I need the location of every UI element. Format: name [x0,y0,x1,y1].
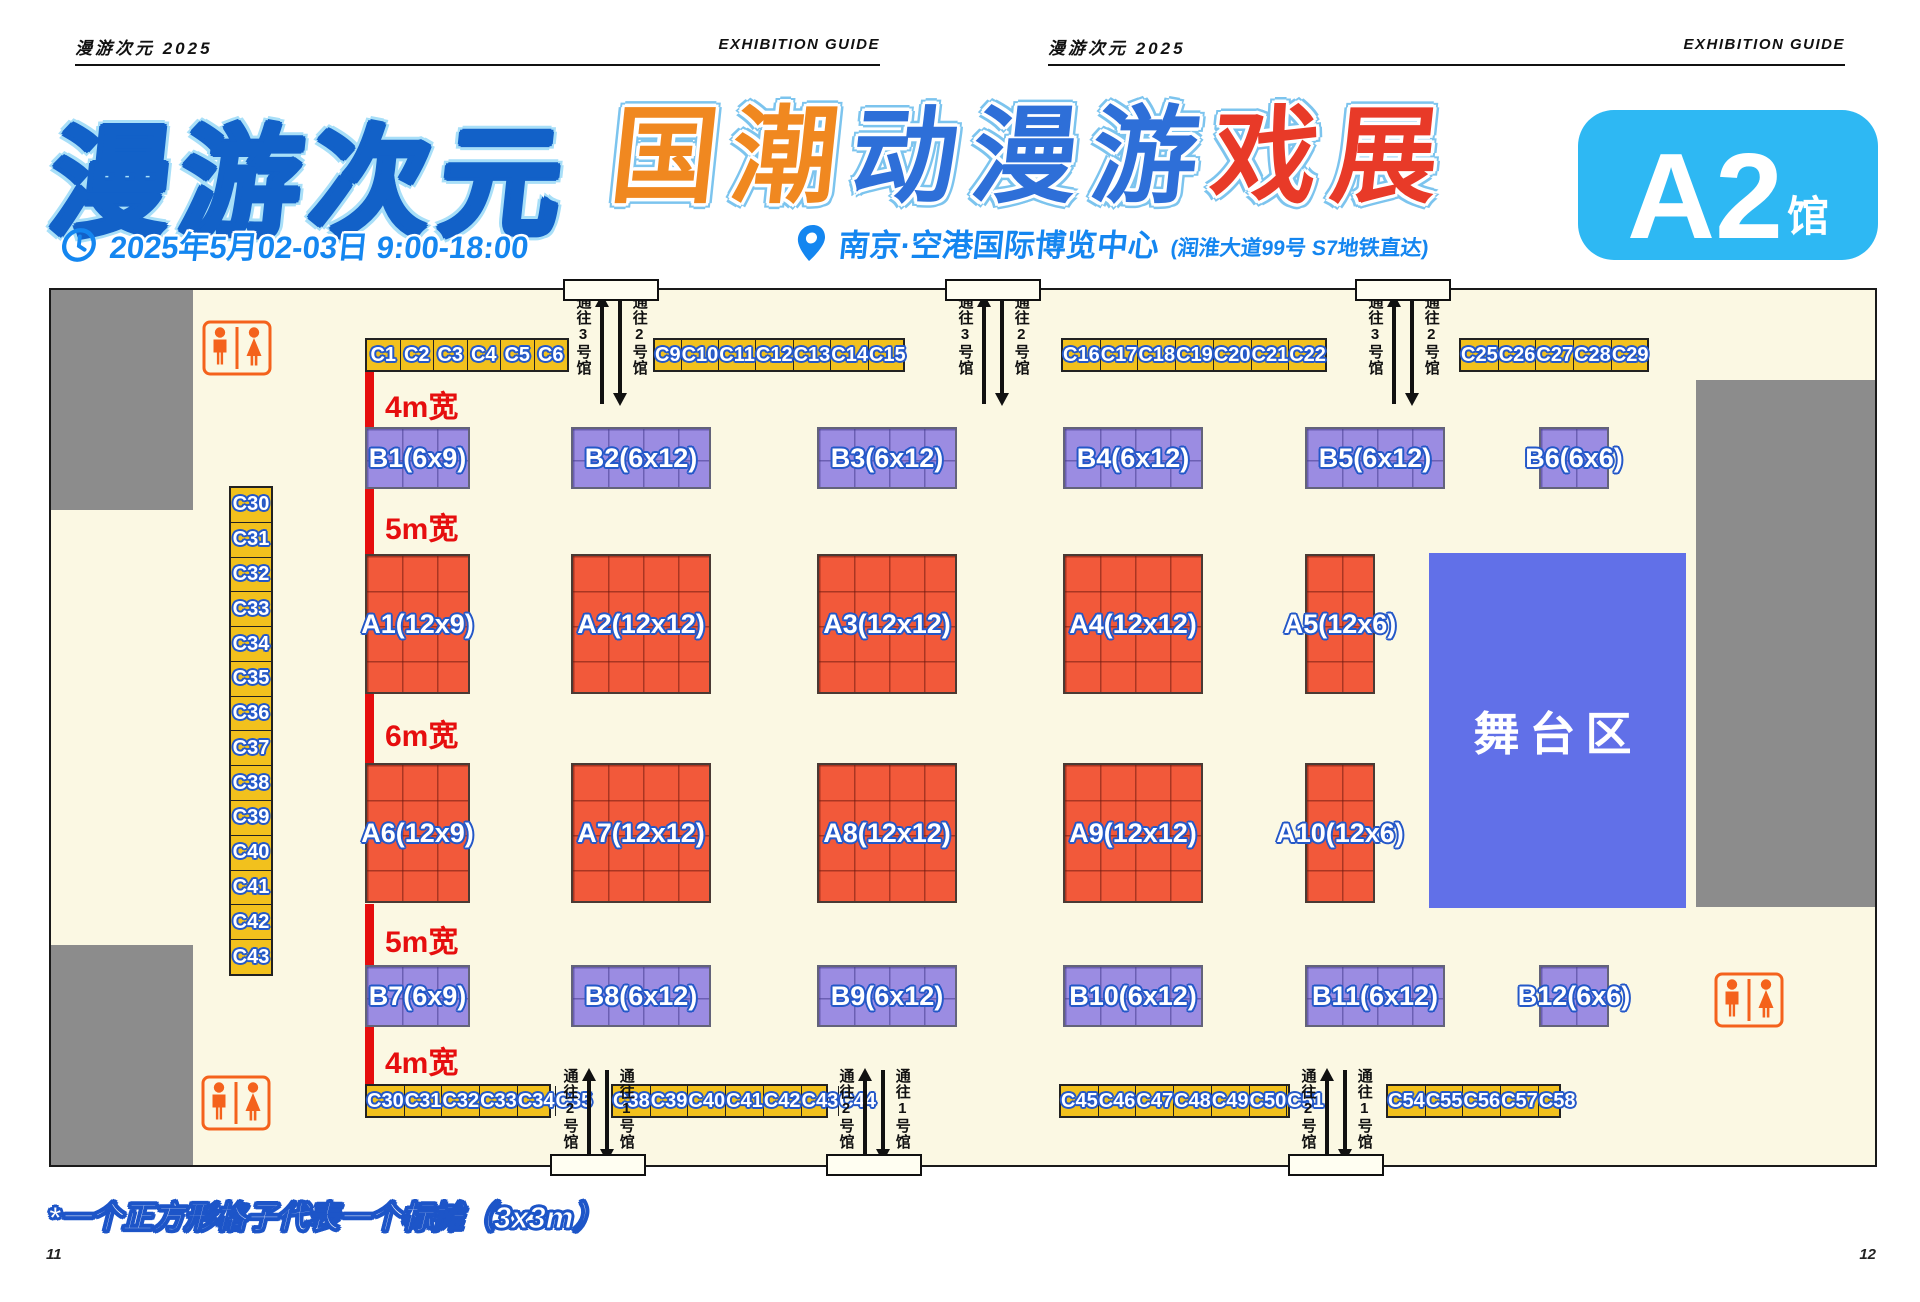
c-booth: C21 [1252,340,1290,370]
c-booth: C35 [231,662,271,697]
booth-b6: B6(6x6) [1539,427,1609,489]
arrow-up-icon [1320,1068,1335,1162]
c-booth-label: C13 [794,344,831,367]
booth-label: B6(6x6) [1525,443,1623,474]
corridor-label: 通往2号馆 [1013,294,1030,406]
c-booth: C55 [1426,1086,1464,1116]
booth-b3: B3(6x12) [817,427,957,489]
booth-label: B9(6x12) [831,981,944,1012]
c-booth-label: C4 [471,344,497,367]
c-booth-label: C36 [233,702,270,725]
c-booth-label: C37 [233,737,270,760]
c-booth: C12 [756,340,794,370]
arrow-shaft [1325,1079,1329,1160]
exhibition-guide-page: 漫游次元 2025 EXHIBITION GUIDE 漫游次元 2025 EXH… [0,0,1920,1302]
c-booth-group: C16C17C18C19C20C21C22 [1061,338,1327,372]
page-header-guide-left: EXHIBITION GUIDE [580,36,880,53]
c-booth: C57 [1501,1086,1539,1116]
c-booth-group: C25C26C27C28C29 [1459,338,1649,372]
wall-gray-block [51,290,193,510]
c-booth-label: C30 [233,493,270,516]
c-booth-label: C49 [1212,1090,1249,1113]
c-booth: C16 [1063,340,1101,370]
page-number-left: 11 [46,1246,62,1263]
c-booth: C4 [468,340,502,370]
booth-label: A4(12x12) [1069,609,1197,640]
c-booth: C31 [231,523,271,558]
arrow-shaft [1343,1070,1347,1151]
c-booth-label: C27 [1536,344,1573,367]
c-booth: C33 [480,1086,518,1116]
c-booth-label: C34 [233,633,270,656]
booth-label: B8(6x12) [585,981,698,1012]
arrow-head [613,393,627,406]
booth-a2: A2(12x12) [571,554,711,694]
c-booth-label: C33 [480,1090,517,1113]
venue-row: 南京·空港国际博览中心 (润淮大道99号 S7地铁直达) [793,220,1432,265]
arrow-shaft [1410,296,1414,395]
booth-a4: A4(12x12) [1063,554,1203,694]
c-booth: C15 [869,340,906,370]
c-booth-label: C41 [233,876,270,899]
corridor-passage: 通往3号馆通往2号馆 [951,294,1035,406]
stage-area: 舞台区 [1429,553,1686,908]
booth-b10: B10(6x12) [1063,965,1203,1027]
c-booth: C49 [1212,1086,1250,1116]
c-booth: C58 [1539,1086,1576,1116]
c-booth-label: C25 [1461,344,1498,367]
page-header-brand-left: 漫游次元 2025 [75,34,213,59]
c-booth-label: C38 [233,772,270,795]
legend-note: *一个正方形格子代表一个标摊（3x3m） [48,1192,604,1237]
c-booth: C19 [1176,340,1214,370]
clock-icon [58,226,100,264]
c-booth-label: C40 [233,841,270,864]
c-booth-label: C18 [1138,344,1175,367]
c-booth-label: C32 [233,563,270,586]
aisle-width-label: 4m宽 [385,382,458,426]
c-booth: C3 [434,340,468,370]
arrow-head [858,1068,872,1081]
c-booth: C34 [518,1086,556,1116]
c-booth: C48 [1174,1086,1212,1116]
c-booth-label: C26 [1499,344,1536,367]
booth-a9: A9(12x12) [1063,763,1203,903]
c-booth-label: C58 [1539,1090,1576,1113]
door-opening [563,279,659,301]
hall-badge-main: A2 [1627,132,1783,260]
c-booth: C40 [231,836,271,871]
booth-label: B12(6x6) [1518,981,1631,1012]
c-booth-group: C1C2C3C4C5C6 [365,338,569,372]
arrow-shaft [863,1079,867,1160]
arrow-shaft [982,305,986,404]
c-booth-column: C30C31C32C33C34C35C36C37C38C39C40C41C42C… [229,486,273,976]
booth-a5: A5(12x6) [1305,554,1375,694]
c-booth: C32 [231,558,271,593]
booth-b7: B7(6x9) [365,965,470,1027]
c-booth-label: C42 [233,911,270,934]
wall-gray-block [51,945,193,1165]
c-booth-label: C14 [831,344,868,367]
arrow-up-icon [1387,294,1402,406]
c-booth-label: C5 [504,344,530,367]
c-booth: C2 [401,340,435,370]
arrow-down-icon [1405,294,1420,406]
corridor-label: 通往3号馆 [1366,294,1383,406]
arrow-shaft [1000,296,1004,395]
c-booth-label: C42 [764,1090,801,1113]
c-booth: C11 [719,340,756,370]
wall-gray-block [1696,380,1875,907]
arrow-shaft [600,305,604,404]
c-booth-label: C9 [655,344,681,367]
booth-a8: A8(12x12) [817,763,957,903]
booth-b8: B8(6x12) [571,965,711,1027]
c-booth: C30 [367,1086,405,1116]
c-booth-label: C28 [1574,344,1611,367]
c-booth-label: C3 [437,344,463,367]
arrow-up-icon [977,294,992,406]
c-booth: C34 [231,627,271,662]
c-booth: C27 [1536,340,1574,370]
c-booth: C22 [1289,340,1326,370]
booth-label: B3(6x12) [831,443,944,474]
sub-title-char: 动 [846,104,963,210]
c-booth: C26 [1499,340,1537,370]
booth-b11: B11(6x12) [1305,965,1445,1027]
c-booth: C40 [688,1086,726,1116]
booth-label: A10(12x6) [1276,818,1404,849]
booth-label: B2(6x12) [585,443,698,474]
booth-a10: A10(12x6) [1305,763,1375,903]
sub-title-char: 戏 [1206,104,1323,210]
c-booth-label: C20 [1214,344,1251,367]
c-booth-label: C11 [719,344,755,367]
c-booth: C9 [655,340,682,370]
corridor-passage: 通往3号馆通往2号馆 [569,294,653,406]
door-opening [1288,1154,1384,1176]
c-booth-label: C33 [233,598,270,621]
c-booth: C36 [231,697,271,732]
c-booth: C5 [501,340,535,370]
arrow-shaft [881,1070,885,1151]
c-booth: C38 [231,766,271,801]
c-booth: C20 [1214,340,1252,370]
c-booth-label: C46 [1099,1090,1136,1113]
c-booth: C10 [682,340,720,370]
c-booth: C56 [1463,1086,1501,1116]
c-booth-label: C31 [405,1090,442,1113]
c-booth: C54 [1388,1086,1426,1116]
booth-label: A2(12x12) [577,609,705,640]
aisle-width-line [365,694,374,763]
corridor-label: 通往2号馆 [1423,294,1440,406]
corridor-passage: 通往2号馆通往1号馆 [556,1068,640,1162]
arrow-down-icon [600,1068,615,1162]
door-opening [945,279,1041,301]
c-booth-group: C38C39C40C41C42C43C44 [611,1084,828,1118]
hall-badge: A2 馆 [1578,110,1878,260]
aisle-width-label: 4m宽 [385,1038,458,1082]
booth-a1: A1(12x9) [365,554,470,694]
aisle-width-line [365,372,374,427]
page-header-rule-left [75,64,880,66]
c-booth: C39 [651,1086,689,1116]
c-booth: C30 [231,488,271,523]
corridor-label: 通往2号馆 [1299,1068,1316,1162]
c-booth-label: C50 [1250,1090,1287,1113]
arrow-shaft [605,1070,609,1151]
male-female-restroom-icon [201,1075,271,1131]
arrow-head [1320,1068,1334,1081]
datetime-row: 2025年5月02-03日 9:00-18:00 [58,222,531,267]
c-booth-label: C48 [1174,1090,1211,1113]
corridor-passage: 通往3号馆通往2号馆 [1361,294,1445,406]
page-header-brand-right: 漫游次元 2025 [1048,34,1186,59]
aisle-width-line [365,904,374,965]
booth-label: B1(6x9) [369,443,467,474]
c-booth-group: C9C10C11C12C13C14C15 [653,338,905,372]
booth-label: A1(12x9) [361,609,474,640]
c-booth-label: C43 [233,946,270,969]
c-booth-group: C54C55C56C57C58 [1386,1084,1561,1118]
c-booth-label: C30 [367,1090,404,1113]
event-datetime: 2025年5月02-03日 9:00-18:00 [108,222,531,267]
corridor-label: 通往2号馆 [837,1068,854,1162]
c-booth: C6 [535,340,568,370]
corridor-label: 通往1号馆 [1356,1068,1373,1162]
c-booth-label: C45 [1061,1090,1098,1113]
booth-b12: B12(6x6) [1539,965,1609,1027]
c-booth-label: C10 [682,344,719,367]
c-booth: C32 [442,1086,480,1116]
sub-title-char: 漫 [966,104,1083,210]
c-booth: C31 [405,1086,443,1116]
c-booth-group: C45C46C47C48C49C50C51 [1059,1084,1290,1118]
c-booth: C14 [831,340,869,370]
c-booth-label: C41 [726,1090,763,1113]
c-booth: C25 [1461,340,1499,370]
page-header-guide-right: EXHIBITION GUIDE [1545,36,1845,53]
page-number-right: 12 [1836,1246,1876,1263]
c-booth-label: C16 [1063,344,1100,367]
c-booth-label: C47 [1136,1090,1173,1113]
c-booth-label: C34 [518,1090,555,1113]
sub-title-char: 展 [1326,104,1443,210]
c-booth-label: C31 [233,528,270,551]
hall-badge-suffix: 馆 [1787,183,1829,244]
booth-label: A5(12x6) [1284,609,1397,640]
c-booth: C41 [231,871,271,906]
c-booth: C33 [231,592,271,627]
booth-b5: B5(6x12) [1305,427,1445,489]
c-booth-label: C29 [1612,344,1649,367]
booth-a6: A6(12x9) [365,763,470,903]
corridor-label: 通往2号馆 [631,294,648,406]
c-booth-label: C32 [442,1090,479,1113]
booth-label: A7(12x12) [577,818,705,849]
door-opening [1355,279,1451,301]
booth-a3: A3(12x12) [817,554,957,694]
location-pin-icon [793,223,829,263]
c-booth: C42 [231,905,271,940]
booth-b4: B4(6x12) [1063,427,1203,489]
booth-label: B4(6x12) [1077,443,1190,474]
c-booth-label: C56 [1463,1090,1500,1113]
corridor-label: 通往1号馆 [618,1068,635,1162]
arrow-head [995,393,1009,406]
arrow-down-icon [1338,1068,1353,1162]
arrow-down-icon [876,1068,891,1162]
venue-name: 南京·空港国际博览中心 [837,220,1162,265]
sub-title: 国潮动漫游戏展 [606,104,1457,210]
arrow-up-icon [858,1068,873,1162]
c-booth: C50 [1250,1086,1288,1116]
venue-note: (润淮大道99号 S7地铁直达) [1169,232,1430,262]
corridor-passage: 通往2号馆通往1号馆 [1294,1068,1378,1162]
arrow-shaft [587,1079,591,1160]
corridor-label: 通往3号馆 [574,294,591,406]
c-booth-label: C40 [688,1090,725,1113]
c-booth: C47 [1136,1086,1174,1116]
corridor-label: 通往1号馆 [894,1068,911,1162]
c-booth: C18 [1138,340,1176,370]
door-opening [826,1154,922,1176]
corridor-label: 通往2号馆 [561,1068,578,1162]
arrow-up-icon [582,1068,597,1162]
arrow-head [582,1068,596,1081]
aisle-width-line [365,489,374,554]
booth-label: B10(6x12) [1069,981,1197,1012]
c-booth: C17 [1101,340,1139,370]
floor-plan: 舞台区B1(6x9)B2(6x12)B3(6x12)B4(6x12)B5(6x1… [49,288,1877,1167]
male-female-restroom-icon [202,320,272,376]
c-booth-label: C2 [404,344,430,367]
corridor-passage: 通往2号馆通往1号馆 [832,1068,916,1162]
booth-label: A8(12x12) [823,818,951,849]
aisle-width-label: 6m宽 [385,711,458,755]
sub-title-char: 潮 [726,104,843,210]
c-booth-label: C1 [370,344,396,367]
c-booth-label: C21 [1252,344,1289,367]
c-booth-label: C19 [1176,344,1213,367]
c-booth: C41 [726,1086,764,1116]
booth-b1: B1(6x9) [365,427,470,489]
arrow-shaft [618,296,622,395]
c-booth-label: C54 [1388,1090,1425,1113]
arrow-down-icon [995,294,1010,406]
sub-title-char: 游 [1086,104,1203,210]
booth-b2: B2(6x12) [571,427,711,489]
booth-label: B5(6x12) [1319,443,1432,474]
booth-b9: B9(6x12) [817,965,957,1027]
c-booth-label: C22 [1289,344,1326,367]
c-booth-label: C35 [233,667,270,690]
c-booth: C13 [794,340,832,370]
arrow-up-icon [595,294,610,406]
booth-label: B11(6x12) [1312,981,1438,1012]
c-booth: C43 [231,940,271,974]
door-opening [550,1154,646,1176]
c-booth: C45 [1061,1086,1099,1116]
page-header-rule-right [1048,64,1845,66]
c-booth-label: C55 [1426,1090,1463,1113]
c-booth: C29 [1612,340,1649,370]
c-booth-label: C39 [651,1090,688,1113]
sub-title-char: 国 [606,104,723,210]
aisle-width-label: 5m宽 [385,504,458,548]
c-booth: C46 [1099,1086,1137,1116]
booth-label: B7(6x9) [369,981,467,1012]
aisle-width-line [365,1027,374,1084]
arrow-down-icon [613,294,628,406]
c-booth-group: C30C31C32C33C34C35 [365,1084,551,1118]
arrow-head [1405,393,1419,406]
c-booth-label: C6 [538,344,564,367]
c-booth-label: C17 [1101,344,1138,367]
aisle-width-label: 5m宽 [385,917,458,961]
booth-label: A9(12x12) [1069,818,1197,849]
arrow-shaft [1392,305,1396,404]
corridor-label: 通往3号馆 [956,294,973,406]
c-booth-label: C57 [1501,1090,1538,1113]
booth-label: A6(12x9) [361,818,474,849]
c-booth-label: C12 [756,344,793,367]
c-booth: C42 [764,1086,802,1116]
c-booth: C37 [231,731,271,766]
c-booth: C39 [231,801,271,836]
c-booth: C1 [367,340,401,370]
booth-label: A3(12x12) [823,609,951,640]
male-female-restroom-icon [1714,972,1784,1028]
c-booth: C28 [1574,340,1612,370]
c-booth-label: C39 [233,806,270,829]
booth-a7: A7(12x12) [571,763,711,903]
c-booth-label: C15 [869,344,906,367]
